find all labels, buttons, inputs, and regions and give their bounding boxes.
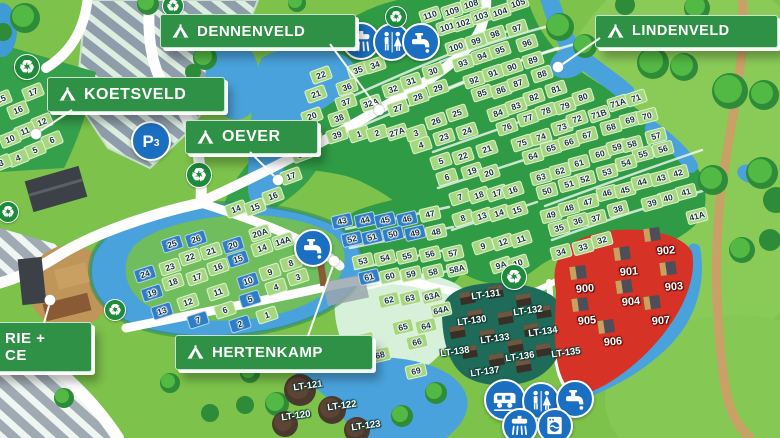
tent-icon <box>58 87 77 102</box>
field-sign-label: HERTENKAMP <box>212 345 323 360</box>
field-sign-label: CE <box>5 348 27 363</box>
field-sign-receptie: RIE +CE <box>0 322 92 372</box>
field-sign-label: LINDENVELD <box>632 24 730 39</box>
field-sign-hertenkamp: HERTENKAMP <box>175 335 373 370</box>
field-sign-label: DENNENVELD <box>197 24 305 39</box>
field-sign-lindenveld: LINDENVELD <box>595 15 778 48</box>
field-sign-label: KOETSVELD <box>84 87 186 103</box>
field-signs-layer: DENNENVELDKOETSVELDOEVERLINDENVELDHERTEN… <box>0 0 780 438</box>
field-sign-label: OEVER <box>222 129 281 145</box>
tent-icon <box>196 130 215 145</box>
tent-icon <box>186 345 205 360</box>
tent-icon <box>606 24 625 39</box>
field-sign-oever: OEVER <box>185 120 318 154</box>
field-sign-koetsveld: KOETSVELD <box>47 77 225 112</box>
park-map: 1716151211106543141516171819202122353436… <box>0 0 780 438</box>
field-sign-label: RIE + <box>5 331 45 346</box>
tent-icon <box>171 24 190 39</box>
field-sign-dennenveld: DENNENVELD <box>160 14 356 48</box>
